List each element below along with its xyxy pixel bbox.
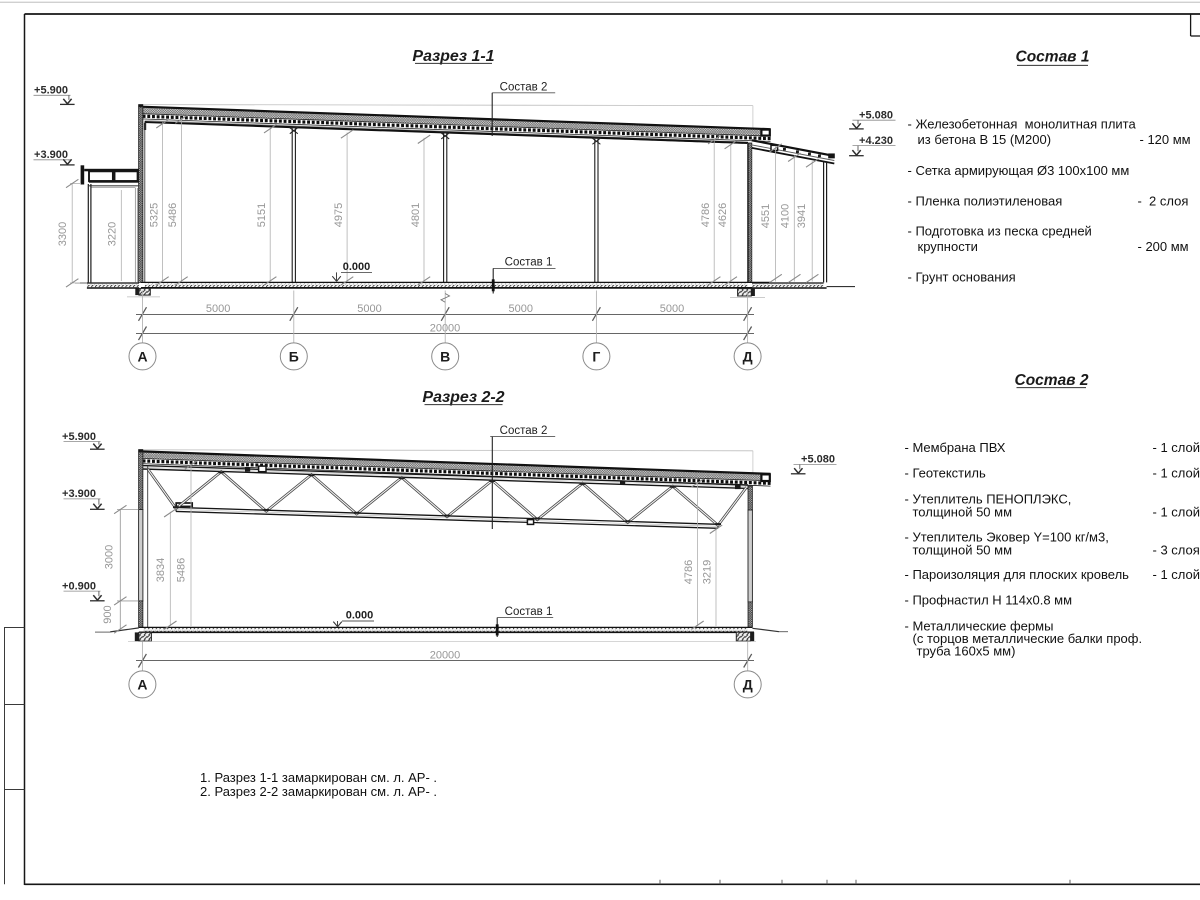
svg-text:Б: Б — [289, 349, 299, 365]
svg-text:- Пароизоляция для плоских кро: - Пароизоляция для плоских кровель — [905, 567, 1130, 582]
svg-text:Состав 1: Состав 1 — [505, 606, 553, 618]
svg-text:3219: 3219 — [702, 560, 714, 584]
svg-text:крупности: крупности — [918, 239, 978, 254]
svg-text:Состав 2: Состав 2 — [1015, 372, 1089, 389]
svg-text:5000: 5000 — [509, 303, 533, 315]
svg-text:из бетона В 15 (М200): из бетона В 15 (М200) — [918, 132, 1052, 147]
svg-text:4786: 4786 — [700, 203, 712, 227]
svg-text:4801: 4801 — [410, 203, 422, 227]
svg-text:4786: 4786 — [683, 560, 695, 584]
svg-text:- 3 слоя: - 3 слоя — [1153, 542, 1200, 557]
svg-text:5000: 5000 — [206, 303, 230, 315]
svg-text:0.000: 0.000 — [346, 609, 374, 621]
svg-text:- 2 слоя: - 2 слоя — [1138, 194, 1189, 209]
svg-text:А: А — [137, 349, 147, 365]
svg-text:5000: 5000 — [660, 303, 684, 315]
svg-text:+3.900: +3.900 — [62, 488, 96, 500]
svg-text:- Грунт основания: - Грунт основания — [908, 269, 1016, 284]
svg-text:Состав 1: Состав 1 — [505, 257, 553, 269]
svg-text:труба 160х5 мм): труба 160х5 мм) — [917, 643, 1016, 658]
svg-text:толщиной 50 мм: толщиной 50 мм — [913, 542, 1013, 557]
svg-text:+5.080: +5.080 — [801, 454, 835, 466]
svg-text:Разрез 2-2: Разрез 2-2 — [422, 389, 504, 406]
svg-text:Состав 1: Состав 1 — [1016, 49, 1090, 66]
svg-text:0.000: 0.000 — [343, 261, 371, 273]
svg-text:+3.900: +3.900 — [34, 149, 68, 161]
svg-text:Разрез 1-1: Разрез 1-1 — [412, 48, 494, 65]
svg-text:Д: Д — [743, 677, 753, 693]
svg-text:3834: 3834 — [155, 558, 167, 582]
svg-text:4100: 4100 — [779, 204, 791, 228]
svg-text:5325: 5325 — [148, 203, 160, 227]
svg-text:+5.900: +5.900 — [62, 431, 96, 443]
svg-text:5486: 5486 — [167, 203, 179, 227]
svg-text:Состав 2: Состав 2 — [500, 425, 548, 437]
svg-text:- Геотекстиль: - Геотекстиль — [905, 465, 986, 480]
svg-text:- Сетка армирующая Ø3 100х100: - Сетка армирующая Ø3 100х100 мм — [908, 163, 1130, 178]
svg-text:900: 900 — [102, 605, 114, 623]
svg-text:5486: 5486 — [176, 558, 188, 582]
svg-text:- Подготовка из песка средней: - Подготовка из песка средней — [908, 223, 1092, 238]
svg-text:Состав 2: Состав 2 — [500, 82, 548, 94]
svg-text:+4.230: +4.230 — [859, 135, 893, 147]
svg-text:- Профнастил Н 114х0.8 мм: - Профнастил Н 114х0.8 мм — [905, 592, 1073, 607]
svg-text:5000: 5000 — [357, 303, 381, 315]
svg-text:+5.900: +5.900 — [34, 85, 68, 97]
svg-text:4626: 4626 — [717, 203, 729, 227]
svg-text:3941: 3941 — [796, 204, 808, 228]
svg-text:4975: 4975 — [333, 203, 345, 227]
svg-text:- Пленка полиэтиленовая: - Пленка полиэтиленовая — [908, 194, 1063, 209]
svg-text:1. Разрез 1-1 замаркирован см.: 1. Разрез 1-1 замаркирован см. л. АР- . — [200, 770, 437, 785]
svg-text:3300: 3300 — [57, 222, 69, 246]
svg-text:20000: 20000 — [430, 649, 461, 661]
svg-text:- 1 слой: - 1 слой — [1153, 440, 1200, 455]
svg-text:- Мембрана ПВХ: - Мембрана ПВХ — [905, 440, 1006, 455]
svg-text:- 120 мм: - 120 мм — [1140, 132, 1191, 147]
svg-text:+5.080: +5.080 — [859, 109, 893, 121]
svg-text:5151: 5151 — [256, 203, 268, 227]
svg-text:В: В — [440, 349, 450, 365]
svg-text:3220: 3220 — [107, 222, 119, 246]
svg-text:+0.900: +0.900 — [62, 580, 96, 592]
svg-text:Д: Д — [743, 349, 753, 365]
svg-text:4551: 4551 — [760, 204, 772, 228]
svg-text:толщиной 50 мм: толщиной 50 мм — [913, 504, 1013, 519]
svg-text:- 1 слой: - 1 слой — [1153, 567, 1200, 582]
svg-text:- 200 мм: - 200 мм — [1138, 239, 1189, 254]
svg-text:- 1 слой: - 1 слой — [1153, 504, 1200, 519]
svg-text:А: А — [137, 677, 147, 693]
svg-text:Г: Г — [592, 349, 600, 365]
svg-text:3000: 3000 — [103, 545, 115, 569]
svg-text:2. Разрез 2-2 замаркирован см.: 2. Разрез 2-2 замаркирован см. л. АР- . — [200, 784, 437, 799]
svg-text:- Железобетонная монолитная п: - Железобетонная монолитная плита — [908, 117, 1137, 132]
svg-text:- 1 слой: - 1 слой — [1153, 465, 1200, 480]
